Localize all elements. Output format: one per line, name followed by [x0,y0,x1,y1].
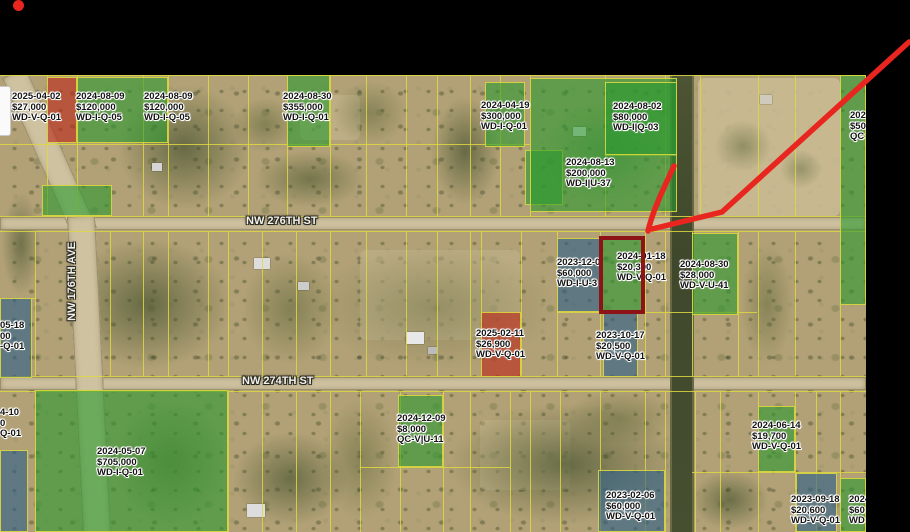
recording-dot-icon [13,0,24,11]
parcel-sale-label: 2025-04-02$27,000WD-V-Q-01 [12,92,61,124]
sale-date: 2023-10-17 [596,331,645,342]
sale-code: WD-V-Q-01 [12,113,61,124]
parcel-sale-label: 2023-02-06$60,000WD-V-Q-01 [606,491,655,523]
sale-code: QC-V|U-11 [397,435,446,446]
parcel-sale-label: 05-1800-Q-01 [0,321,24,353]
sale-date: 2024-08-30 [283,92,332,103]
parcel-boundary [470,392,471,532]
sale-code: WD-I|Q-03 [613,123,662,134]
sale-code: WD [849,516,866,527]
sale-date: 2023-12-0 [557,258,600,269]
sale-date: 2024-08-30 [680,260,729,271]
parcel-boundary [110,232,111,376]
parcel-sale-label: 2024-08-02$80,000WD-I|Q-03 [613,102,662,134]
sale-code: WD-V-Q-01 [791,516,840,527]
sale-date: 2024-08-09 [144,92,193,103]
tree-cluster [712,118,774,174]
parcel-boundary [248,75,249,216]
tree-cluster [778,148,824,190]
sale-date: 2024 [849,495,866,506]
highlighted-parcel-outline [599,236,645,314]
sale-code: WD-I-Q-01 [283,113,332,124]
parcel-sale-label: 2024-06-14$19,700WD-V-Q-01 [752,421,801,453]
sale-date: 2024-06-14 [752,421,801,432]
aerial-parcel-map[interactable]: 2025-04-02$27,000WD-V-Q-012024-08-09$120… [0,75,866,532]
sale-code: Q-01 [0,429,21,440]
parcel-sale-label: 2024-08-09$120,000WD-I-Q-05 [144,92,193,124]
sale-code: WD-V-Q-01 [476,350,525,361]
tree-cluster [300,240,565,375]
parcel-boundary [795,75,796,216]
parcel-boundary [35,232,36,376]
building [760,95,772,104]
parcel-boundary [366,232,367,376]
parcel-overlay-green [42,185,112,216]
road-nw-274th-st [0,377,866,390]
parcel-boundary [406,75,407,216]
parcel-sale-label: 4-100Q-01 [0,408,21,440]
parcel-boundary [665,392,666,532]
sale-code: WD-V-Q-01 [596,352,645,363]
sale-code: WD-I-U-3 [557,279,600,290]
parcel-overlay-blue [0,450,28,532]
top-black-bar [0,0,910,75]
sale-date: 2024-12-09 [397,414,446,425]
screen-recording-frame: 2025-04-02$27,000WD-V-Q-012024-08-09$120… [0,0,910,532]
parcel-boundary [228,232,229,376]
street-label-nw-274th-st: NW 274TH ST [242,375,314,387]
map-control-partial[interactable] [0,86,11,136]
building [406,332,424,344]
parcel-boundary [330,392,331,532]
sale-date: 2024-08-09 [76,92,125,103]
parcel-boundary [0,144,530,145]
sale-code: QC [850,132,866,143]
parcel-boundary [0,216,866,217]
sale-code: WD-V-Q-01 [752,442,801,453]
sale-date: 2025-04-02 [12,92,61,103]
parcel-boundary [700,75,701,216]
parcel-sale-label: 202$50QC [850,111,866,143]
parcel-boundary [360,467,510,468]
sale-date: 2023-09-18 [791,495,840,506]
parcel-sale-label: 2024-08-30$355,000WD-I-Q-01 [283,92,332,124]
sale-date: 2023-02-06 [606,491,655,502]
tree-cluster [688,468,772,532]
sale-date: 2024-08-13 [566,158,615,169]
sale-date: 202 [850,111,866,122]
sale-date: 2024-05-07 [97,447,146,458]
sale-date: 4-10 [0,408,21,419]
parcel-boundary [795,232,796,376]
tree-cluster [738,238,796,370]
sale-code: WD-I|U-37 [566,179,615,190]
parcel-boundary [758,75,759,216]
parcel-sale-label: 2024-08-13$200,000WD-I|U-37 [566,158,615,190]
parcel-boundary [406,232,407,376]
parcel-boundary [296,392,297,532]
parcel-boundary [437,75,438,216]
parcel-sale-label: 2024-08-30$28,000WD-V-U-41 [680,260,729,292]
road-nw-276th-st [0,217,866,230]
sale-code: WD-I-Q-01 [481,122,530,133]
parcel-sale-label: 2023-12-0$60,000WD-I-U-3 [557,258,600,290]
parcel-sale-label: 2024$60WD [849,495,866,527]
parcel-boundary [330,232,331,376]
parcel-boundary [470,232,471,376]
parcel-boundary [168,232,169,376]
parcel-boundary [720,392,721,532]
street-label-nw-276th-st: NW 276TH ST [246,215,318,227]
parcel-boundary [228,392,229,532]
sale-date: 2024-08-02 [613,102,662,113]
parcel-boundary [208,232,209,376]
parcel-boundary [143,232,144,376]
parcel-boundary [470,75,471,216]
sale-code: WD-V-U-41 [680,281,729,292]
parcel-boundary [0,376,866,377]
building [428,347,437,354]
tree-cluster [560,388,680,448]
parcel-boundary [262,392,263,532]
parcel-boundary [296,232,297,376]
parcel-sale-label: 2023-10-17$20,500WD-V-Q-01 [596,331,645,363]
parcel-boundary [208,75,209,216]
parcel-boundary [262,232,263,376]
street-label-nw-176th-ave: NW 176TH AVE [66,242,78,321]
parcel-boundary [0,231,866,232]
parcel-sale-label: 2024-05-07$705,000WD-I-Q-01 [97,447,146,479]
sale-code: WD-V-Q-01 [606,512,655,523]
parcel-boundary [530,392,531,532]
parcel-boundary [366,75,367,216]
sale-code: -Q-01 [0,342,24,353]
parcel-sale-label: 2023-09-18$20,600WD-V-Q-01 [791,495,840,527]
sale-code: WD-I-Q-05 [76,113,125,124]
sale-code: WD-I-Q-05 [144,113,193,124]
building [152,163,162,171]
parcel-boundary [758,232,759,376]
tree-cluster [250,148,370,210]
sale-date: 2025-02-11 [476,329,525,340]
sale-date: 05-18 [0,321,24,332]
parcel-boundary [738,232,739,376]
building [298,282,309,290]
parcel-sale-label: 2024-08-09$120,000WD-I-Q-05 [76,92,125,124]
parcel-boundary [0,75,866,76]
parcel-boundary [360,392,361,532]
right-black-bar [866,0,910,532]
parcel-sale-label: 2024-12-09$8,000QC-V|U-11 [397,414,446,446]
parcel-boundary [560,392,561,532]
parcel-boundary [510,392,511,532]
sale-code: WD-I-Q-01 [97,468,146,479]
sale-date: 2024-04-19 [481,101,530,112]
parcel-boundary [437,232,438,376]
parcel-sale-label: 2025-02-11$26,900WD-V-Q-01 [476,329,525,361]
parcel-boundary [692,472,866,473]
parcel-boundary [695,392,696,532]
parcel-sale-label: 2024-04-19$300,000WD-I-Q-01 [481,101,530,133]
tree-cluster [330,78,410,148]
